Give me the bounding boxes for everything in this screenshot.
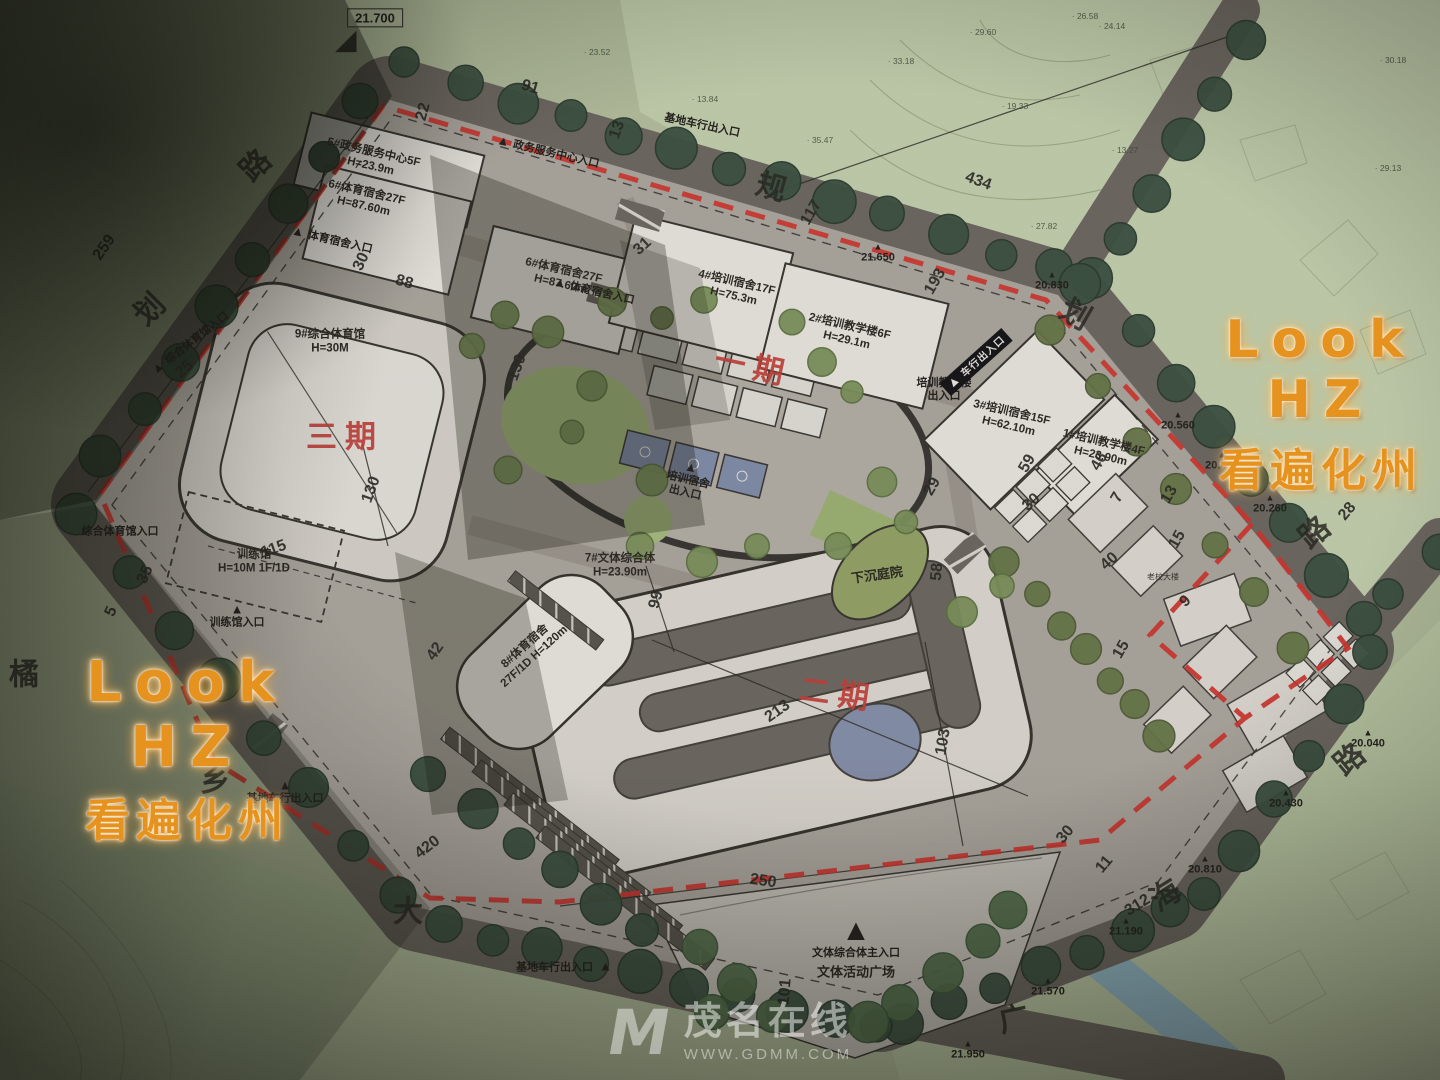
entrance-arrow-icon: ▲	[495, 132, 511, 150]
dimension-label: 42	[423, 639, 449, 664]
entrance-label: 基地车行出入口	[663, 112, 741, 141]
building-label: 4#培训宿舍17FH=75.3m	[694, 268, 777, 312]
dimension-label: 11	[1092, 852, 1117, 877]
dimension-label: 434	[962, 169, 994, 196]
dimension-label: 5	[102, 604, 123, 620]
benchmark-triangle-icon: ▲	[1031, 977, 1065, 984]
spot-elevation-label: · 26.58	[1072, 11, 1098, 21]
dimension-label: 28	[1335, 499, 1361, 525]
building-label: 5#政务服务中心5FH=23.9m	[323, 136, 422, 184]
elevation-label: ▲20.810	[1188, 855, 1222, 876]
building-label: 9#综合体育馆H=30M	[295, 328, 365, 355]
dimension-label: 91	[519, 76, 541, 99]
dimension-label: 130	[505, 352, 532, 384]
spot-elevation-label: · 29.13	[1375, 163, 1401, 173]
dimension-label: 250	[748, 871, 777, 893]
road-name-label: 橘	[9, 657, 39, 692]
dimension-label: 259	[90, 232, 121, 265]
spot-elevation-label: · 13.27	[1112, 145, 1138, 155]
dimension-label: 35	[134, 563, 159, 587]
spot-elevation-label: · 35.47	[807, 135, 833, 145]
road-name-label: 海	[1144, 873, 1188, 919]
elevation-label: ▲21.650	[861, 243, 895, 264]
entrance-arrow-icon: ▲	[552, 273, 568, 291]
dimension-label: 130	[359, 474, 386, 506]
spot-elevation-label: · 29.60	[970, 27, 996, 37]
site-plan-photo: 5#政务服务中心5FH=23.9m6#体育宿舍27FH=87.60m6#体育宿舍…	[0, 0, 1440, 1080]
gdmm-site-url: WWW.GDMM.COM	[684, 1046, 852, 1063]
dimension-label: 29	[920, 475, 945, 500]
benchmark-triangle-icon: ▲	[951, 1040, 985, 1047]
watermark-text-en: Look HZ	[62, 650, 312, 780]
watermark-text-cn: 看遍化州	[1196, 434, 1440, 499]
entrance-label: 综合体育馆入口	[82, 526, 159, 539]
entrance-arrow-icon: ▲	[290, 222, 306, 240]
spot-elevation-label: · 30.18	[1380, 55, 1406, 65]
building-label: 2#培训教学楼6FH=29.1m	[804, 311, 892, 356]
elevation-label: 21.700◢	[347, 8, 403, 27]
benchmark-triangle-icon: ◢	[336, 27, 356, 53]
entrance-label: ▲培训宿舍 出入口	[662, 456, 714, 505]
dimension-label: 7	[1108, 489, 1129, 506]
elevation-label: ▲21.190	[1109, 917, 1143, 938]
entrance-arrow-icon: ▲	[148, 357, 167, 377]
dimension-label: 58	[928, 562, 948, 581]
entrance-label: 基地车行出入口▲	[516, 960, 612, 975]
spot-elevation-label: · 33.18	[888, 56, 914, 66]
gdmm-site-name: 茂名在线	[684, 1003, 852, 1043]
entrance-arrow-icon: ▲	[599, 959, 612, 974]
elevation-label: ▲20.830	[1035, 271, 1069, 292]
entrance-label: ▲车行出入口	[940, 328, 1013, 396]
phase-label: 三期	[306, 420, 384, 457]
road-name-label: 路	[1292, 510, 1338, 556]
plan-labels-layer: 5#政务服务中心5FH=23.9m6#体育宿舍27FH=87.60m6#体育宿舍…	[0, 0, 1440, 1080]
dimension-label: 22	[413, 101, 436, 123]
road-name-label: 划	[127, 287, 173, 333]
dimension-label: 30	[1053, 822, 1079, 848]
elevation-label: ▲20.560	[1161, 411, 1195, 432]
dimension-label: 13	[606, 118, 630, 141]
elevation-label: ▲21.950	[951, 1040, 985, 1061]
elevation-label: ▲20.430	[1269, 789, 1303, 810]
dimension-label: 9	[1176, 592, 1195, 612]
watermark-text-cn: 看遍化州	[62, 784, 312, 849]
dimension-label: 30	[1019, 490, 1045, 516]
area-label: 下沉庭院	[850, 564, 904, 586]
entrance-label: ▲体育宿舍入口	[290, 223, 374, 256]
elevation-label: ▲21.570	[1031, 977, 1065, 998]
road-name-label: 广	[996, 1000, 1033, 1041]
dimension-label: 13	[1157, 483, 1182, 508]
dimension-label: 103	[932, 727, 955, 757]
benchmark-triangle-icon: ▲	[1188, 855, 1222, 862]
watermark-look-hz-right: Look HZ 看遍化州	[1196, 310, 1440, 499]
phase-label: 一期	[711, 342, 795, 394]
entrance-label: ▲政务服务中心入口	[495, 133, 601, 171]
spot-elevation-label: · 27.82	[1031, 221, 1057, 231]
building-label: 6#体育宿舍27FH=87.60m	[324, 178, 407, 222]
road-name-label: 大	[393, 894, 423, 929]
dimension-label: 15	[1165, 528, 1190, 553]
watermark-gdmm-footer: M 茂名在线 WWW.GDMM.COM	[608, 1002, 852, 1064]
dimension-label: 193	[921, 266, 951, 299]
entrance-label: ▲文体综合体主入口	[812, 916, 900, 960]
benchmark-triangle-icon: ▲	[1351, 729, 1385, 736]
building-label: 8#体育宿舍27F/1D H=120m	[489, 613, 571, 690]
entrance-label: ▲训练馆入口	[210, 603, 265, 630]
road-name-label: 划	[1053, 292, 1097, 338]
watermark-text-en: Look HZ	[1196, 310, 1440, 430]
dimension-label: 99	[646, 589, 669, 611]
dimension-label: 213	[762, 697, 795, 728]
entrance-arrow-icon: ▲	[812, 916, 900, 946]
building-label: 7#文体综合体H=23.90m	[585, 552, 655, 579]
dimension-label: 88	[393, 271, 415, 294]
dimension-label: 59	[1015, 452, 1040, 477]
watermark-look-hz-left: Look HZ 看遍化州	[62, 650, 312, 849]
elevation-label: ▲20.040	[1351, 729, 1385, 750]
dimension-label: 117	[797, 197, 826, 229]
area-label: 文体活动广场	[817, 964, 895, 979]
gdmm-logo-icon: M	[603, 1002, 676, 1064]
spot-elevation-label: · 13.84	[692, 94, 718, 104]
phase-label: 二期	[797, 671, 879, 718]
spot-elevation-label: · 23.52	[584, 47, 610, 57]
benchmark-triangle-icon: ▲	[1161, 411, 1195, 418]
building-label: 3#培训宿舍15FH=62.10m	[969, 398, 1052, 442]
road-name-label: 路	[233, 143, 279, 189]
spot-elevation-label: · 24.14	[1099, 21, 1125, 31]
building-label: 老校大楼	[1147, 572, 1179, 581]
benchmark-triangle-icon: ▲	[861, 243, 895, 250]
benchmark-triangle-icon: ▲	[1109, 917, 1143, 924]
benchmark-triangle-icon: ▲	[1269, 789, 1303, 796]
dimension-label: 420	[412, 832, 445, 863]
dimension-label: 31	[630, 234, 656, 260]
entrance-arrow-icon: ▲	[210, 603, 265, 616]
spot-elevation-label: · 19.33	[1002, 101, 1028, 111]
benchmark-triangle-icon: ▲	[1035, 271, 1069, 278]
dimension-label: 15	[1109, 638, 1134, 663]
dimension-label: 40	[1097, 549, 1123, 575]
road-name-label: 规	[752, 167, 791, 209]
